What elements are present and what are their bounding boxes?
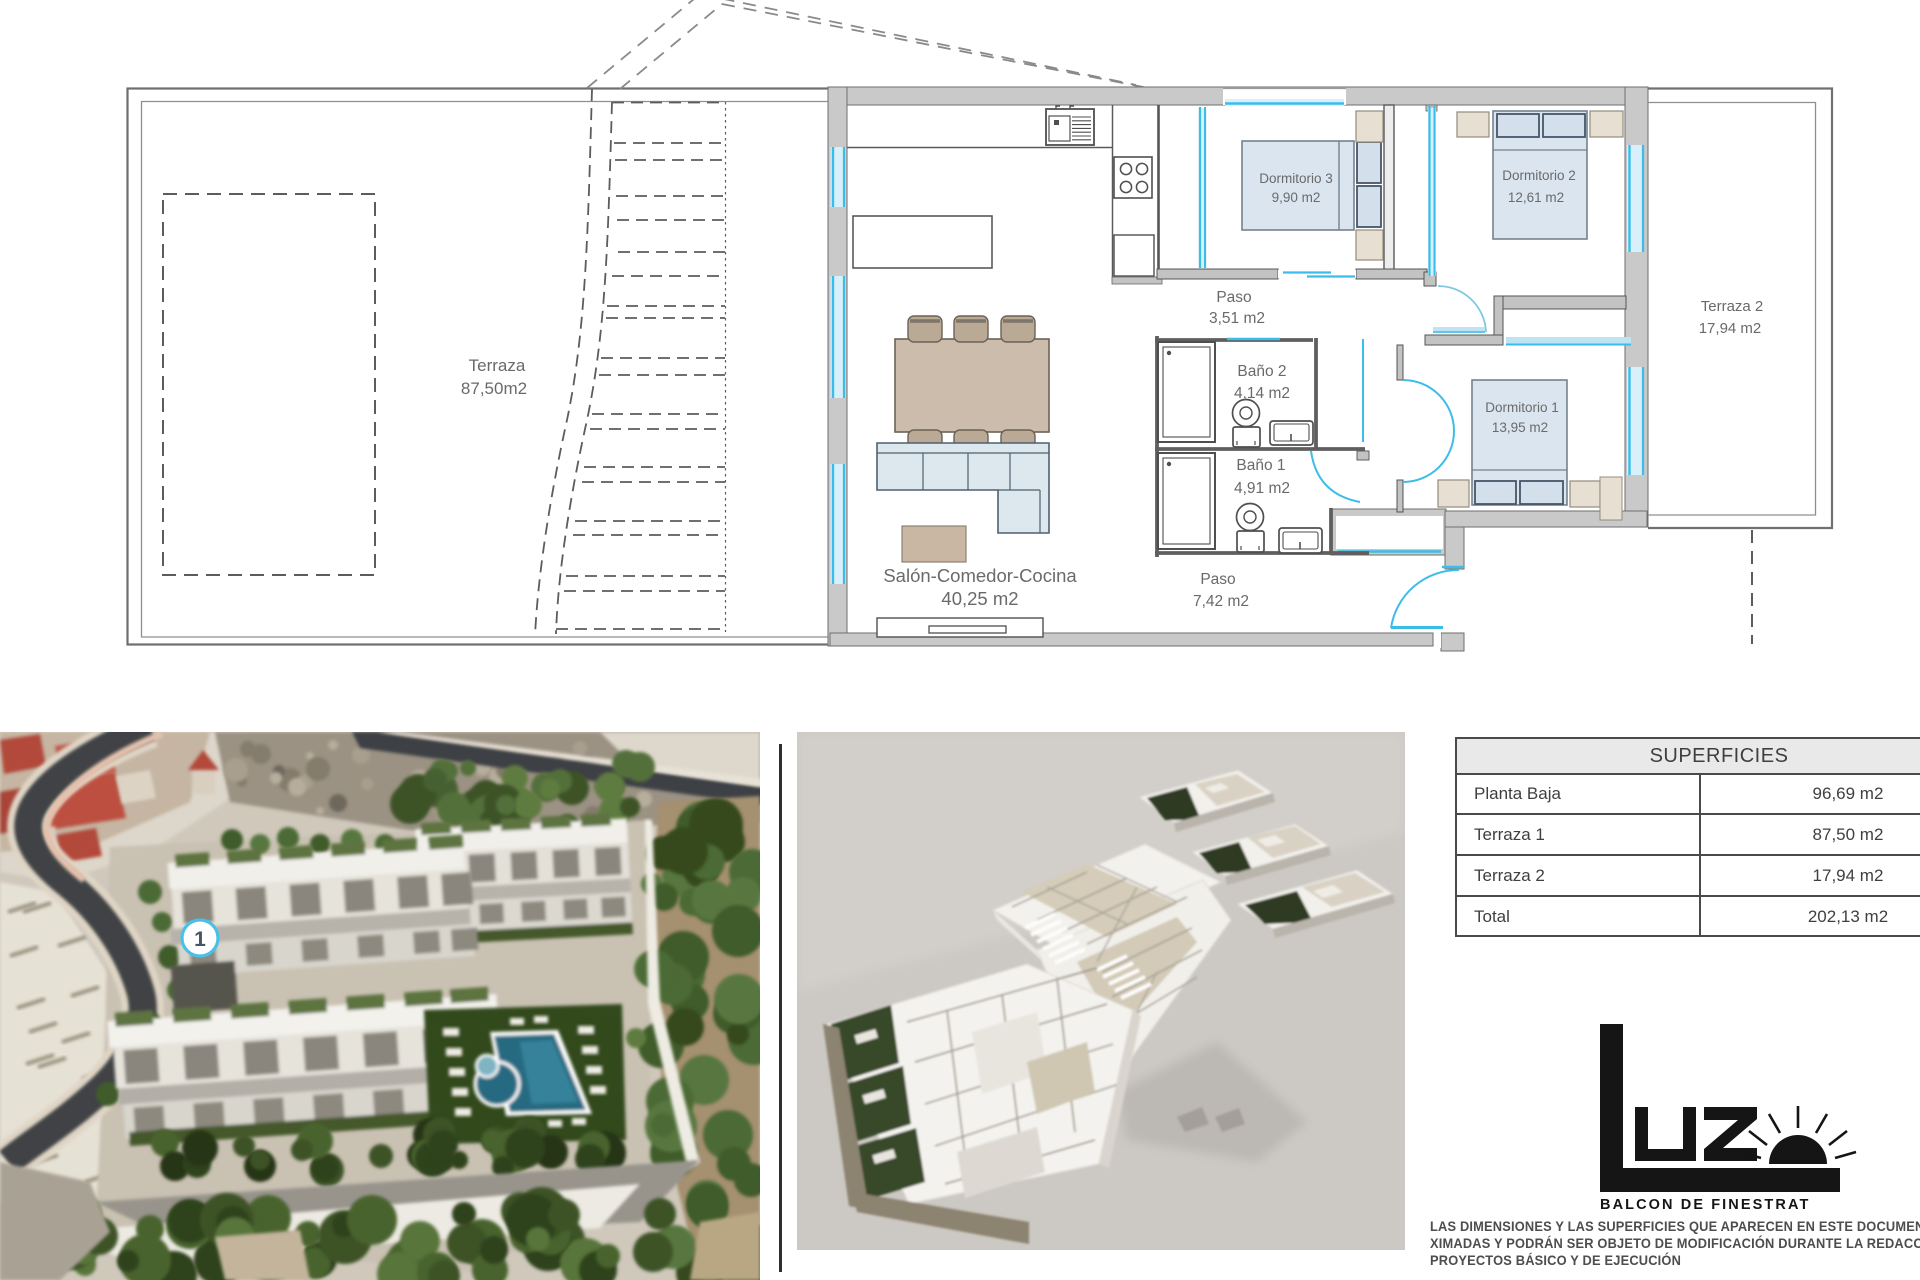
svg-text:Salón-Comedor-Cocina: Salón-Comedor-Cocina [883,565,1077,586]
svg-text:1: 1 [194,928,206,951]
svg-text:Terraza 2: Terraza 2 [1701,298,1764,315]
svg-text:4,91 m2: 4,91 m2 [1234,480,1290,497]
svg-text:Paso: Paso [1216,289,1251,306]
svg-text:3,51 m2: 3,51 m2 [1209,310,1265,327]
svg-text:4,14 m2: 4,14 m2 [1234,385,1290,402]
svg-text:9,90 m2: 9,90 m2 [1272,190,1321,205]
svg-text:7,42 m2: 7,42 m2 [1193,593,1249,610]
svg-text:17,94 m2: 17,94 m2 [1699,320,1762,337]
svg-text:Dormitorio 1: Dormitorio 1 [1485,400,1559,415]
svg-text:Terraza: Terraza [469,356,526,375]
svg-text:Baño 2: Baño 2 [1237,363,1286,380]
svg-text:87,50m2: 87,50m2 [461,379,527,398]
svg-text:Dormitorio 2: Dormitorio 2 [1502,168,1576,183]
svg-text:Baño 1: Baño 1 [1236,457,1285,474]
svg-text:13,95 m2: 13,95 m2 [1492,420,1548,435]
svg-text:BALCON DE FINESTRAT: BALCON DE FINESTRAT [1600,1197,1810,1213]
svg-text:Dormitorio 3: Dormitorio 3 [1259,171,1333,186]
svg-text:40,25 m2: 40,25 m2 [941,588,1018,609]
svg-text:12,61 m2: 12,61 m2 [1508,190,1564,205]
svg-text:Paso: Paso [1200,571,1235,588]
